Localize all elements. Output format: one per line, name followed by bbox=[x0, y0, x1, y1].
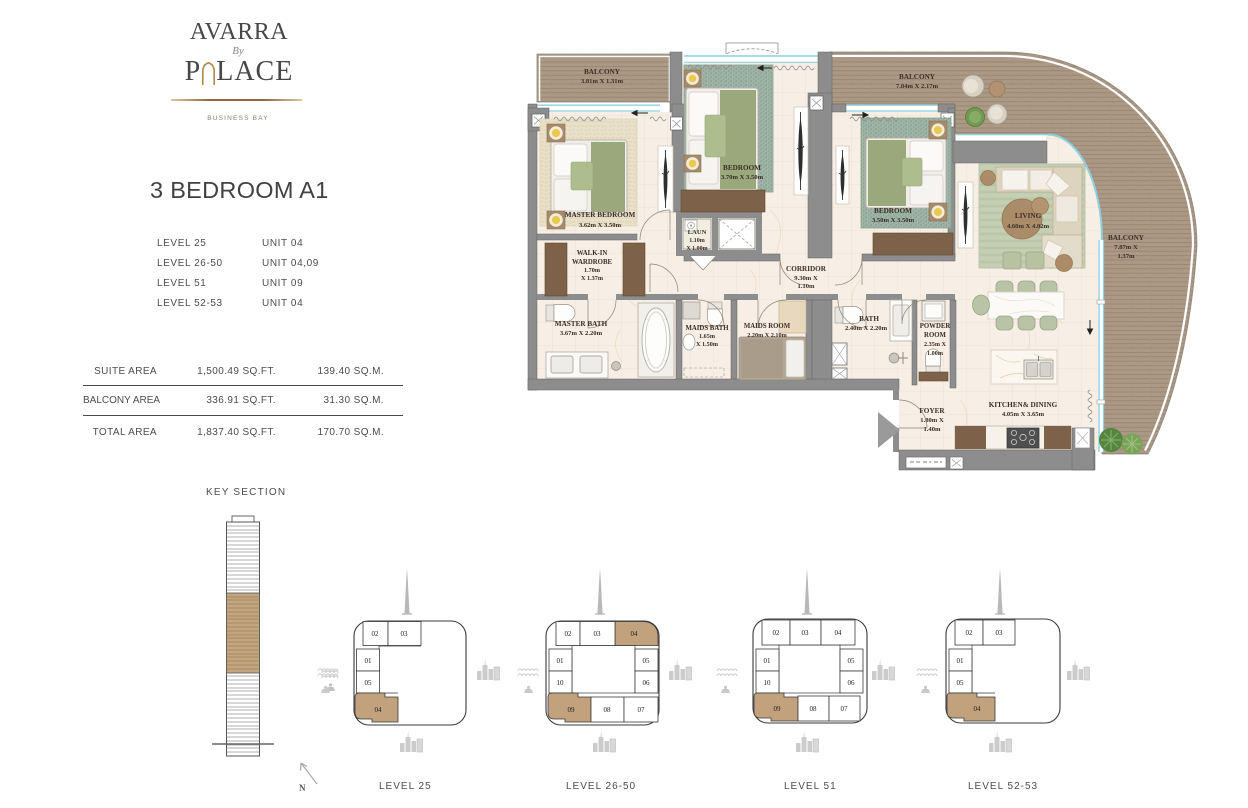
svg-text:POWDER: POWDER bbox=[920, 323, 951, 330]
svg-text:1.65m: 1.65m bbox=[699, 333, 716, 340]
svg-text:01: 01 bbox=[957, 657, 965, 665]
svg-text:03: 03 bbox=[401, 630, 409, 638]
svg-text:04: 04 bbox=[631, 630, 639, 638]
svg-text:MAIDS BATH: MAIDS BATH bbox=[685, 325, 729, 332]
svg-text:KITCHEN& DINING: KITCHEN& DINING bbox=[989, 401, 1058, 409]
svg-text:03: 03 bbox=[594, 630, 602, 638]
svg-text:01: 01 bbox=[365, 657, 373, 665]
svg-text:LAUN: LAUN bbox=[688, 229, 707, 236]
svg-text:X 1.00m: X 1.00m bbox=[686, 246, 707, 252]
svg-text:3.67m X 2.20m: 3.67m X 2.20m bbox=[560, 330, 603, 337]
svg-text:2.40m X 2.20m: 2.40m X 2.20m bbox=[845, 325, 888, 332]
svg-text:BALCONY: BALCONY bbox=[899, 73, 936, 81]
svg-text:1.00m: 1.00m bbox=[927, 350, 944, 357]
svg-text:09: 09 bbox=[568, 706, 576, 714]
svg-text:LIVING: LIVING bbox=[1015, 212, 1042, 220]
svg-text:BALCONY: BALCONY bbox=[1108, 234, 1145, 242]
svg-text:9.30m X: 9.30m X bbox=[794, 275, 818, 282]
svg-text:05: 05 bbox=[957, 679, 965, 687]
svg-text:04: 04 bbox=[835, 629, 843, 637]
svg-text:10: 10 bbox=[764, 679, 772, 687]
svg-text:BALCONY: BALCONY bbox=[584, 68, 621, 76]
svg-text:WARDROBE: WARDROBE bbox=[572, 259, 612, 266]
svg-text:7.87m X: 7.87m X bbox=[1114, 244, 1138, 251]
svg-text:05: 05 bbox=[848, 657, 856, 665]
svg-text:05: 05 bbox=[365, 679, 373, 687]
svg-text:7.84m X 2.17m: 7.84m X 2.17m bbox=[896, 83, 939, 90]
svg-text:07: 07 bbox=[638, 706, 646, 714]
svg-text:02: 02 bbox=[565, 630, 573, 638]
svg-text:2.20m X 2.10m: 2.20m X 2.10m bbox=[747, 332, 787, 339]
svg-text:N: N bbox=[299, 783, 306, 793]
svg-text:ROOM: ROOM bbox=[924, 332, 946, 339]
svg-text:02: 02 bbox=[773, 629, 781, 637]
svg-text:04: 04 bbox=[375, 706, 383, 714]
svg-text:04: 04 bbox=[974, 705, 982, 713]
svg-text:08: 08 bbox=[810, 705, 818, 713]
svg-text:X 1.37m: X 1.37m bbox=[581, 275, 604, 282]
svg-text:02: 02 bbox=[372, 630, 380, 638]
svg-text:09: 09 bbox=[774, 705, 782, 713]
svg-text:05: 05 bbox=[643, 657, 651, 665]
svg-text:03: 03 bbox=[802, 629, 810, 637]
svg-text:3.50m X 3.50m: 3.50m X 3.50m bbox=[872, 217, 915, 224]
svg-text:FOYER: FOYER bbox=[919, 407, 945, 415]
svg-text:BEDROOM: BEDROOM bbox=[723, 164, 761, 172]
svg-text:CORRIDOR: CORRIDOR bbox=[786, 265, 827, 273]
svg-text:X 1.50m: X 1.50m bbox=[696, 341, 719, 348]
svg-text:MASTER BEDROOM: MASTER BEDROOM bbox=[565, 211, 636, 219]
svg-text:3.62m X 3.50m: 3.62m X 3.50m bbox=[579, 222, 622, 229]
svg-text:07: 07 bbox=[841, 705, 849, 713]
svg-text:3.70m X 3.50m: 3.70m X 3.50m bbox=[721, 174, 764, 181]
svg-text:3.81m X 1.31m: 3.81m X 1.31m bbox=[581, 78, 624, 85]
svg-text:1.40m: 1.40m bbox=[923, 426, 941, 433]
svg-text:1.10m: 1.10m bbox=[689, 238, 705, 244]
svg-text:4.05m X 3.65m: 4.05m X 3.65m bbox=[1002, 411, 1045, 418]
svg-text:01: 01 bbox=[764, 657, 772, 665]
svg-text:BATH: BATH bbox=[859, 315, 879, 323]
svg-text:01: 01 bbox=[557, 657, 565, 665]
svg-text:03: 03 bbox=[996, 629, 1004, 637]
svg-text:1.37m: 1.37m bbox=[1117, 253, 1135, 260]
svg-text:BEDROOM: BEDROOM bbox=[874, 207, 912, 215]
svg-text:06: 06 bbox=[848, 679, 856, 687]
svg-text:MASTER BATH: MASTER BATH bbox=[555, 320, 608, 328]
svg-text:1.80m X: 1.80m X bbox=[920, 417, 944, 424]
svg-text:02: 02 bbox=[966, 629, 974, 637]
svg-text:1.10m: 1.10m bbox=[797, 283, 815, 290]
svg-text:WALK-IN: WALK-IN bbox=[577, 250, 608, 257]
svg-text:4.60m X 4.02m: 4.60m X 4.02m bbox=[1007, 223, 1050, 230]
svg-text:MAIDS ROOM: MAIDS ROOM bbox=[744, 323, 791, 330]
svg-text:1.70m: 1.70m bbox=[584, 267, 601, 274]
svg-text:2.35m X: 2.35m X bbox=[924, 341, 947, 348]
svg-text:10: 10 bbox=[557, 679, 565, 687]
svg-text:06: 06 bbox=[643, 679, 651, 687]
svg-text:08: 08 bbox=[604, 706, 612, 714]
